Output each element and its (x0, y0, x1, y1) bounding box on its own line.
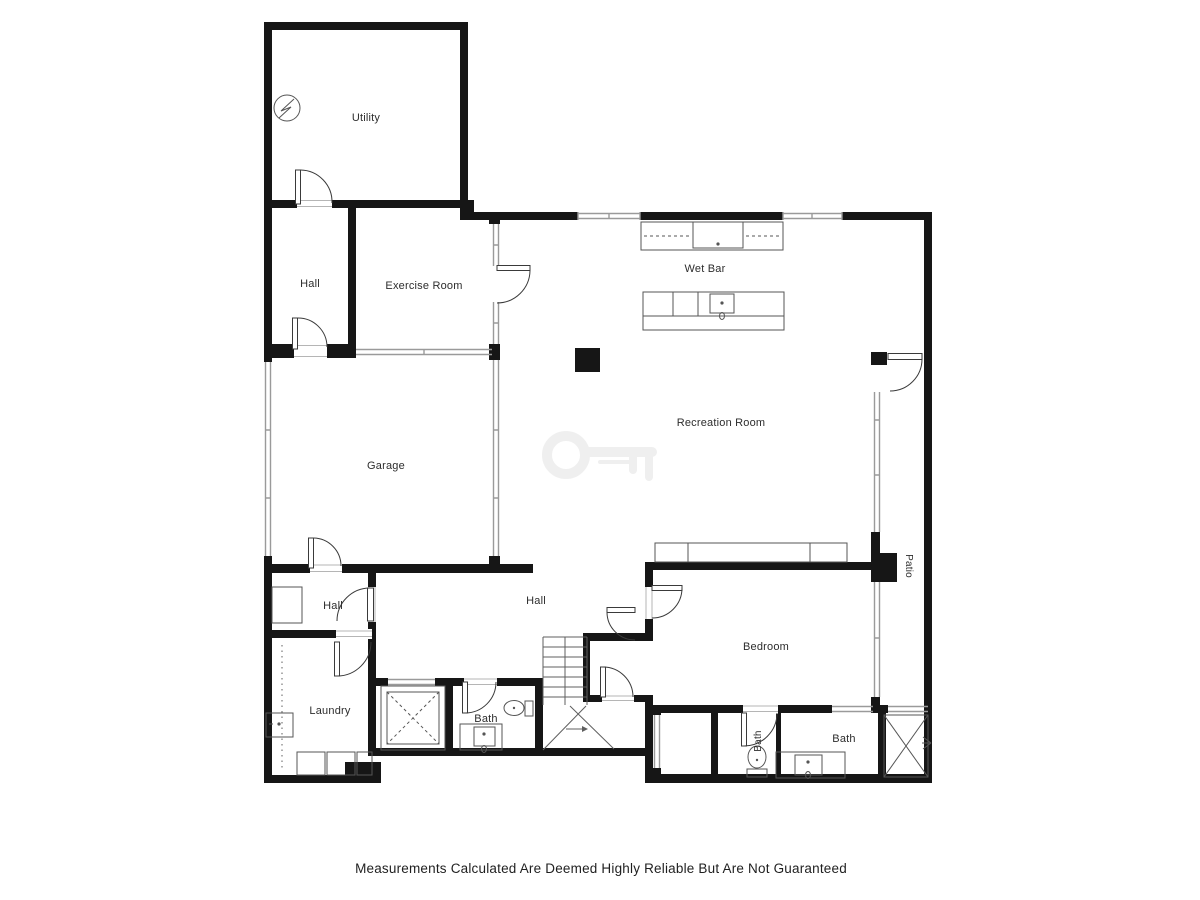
room-label-laundry: Laundry (309, 705, 350, 717)
room-label-recreation-room: Recreation Room (677, 417, 766, 429)
door-hall-upper (293, 318, 328, 359)
bedroom-counter (655, 543, 847, 562)
fixtures (266, 95, 931, 779)
column (575, 348, 600, 372)
shower-icon (381, 686, 445, 750)
wet-bar-cabinets (641, 222, 783, 250)
door-patio (888, 354, 922, 392)
room-label-wet-bar: Wet Bar (685, 263, 726, 275)
key-watermark (547, 436, 652, 477)
walls (264, 22, 932, 783)
bath-center-fixtures (460, 701, 533, 753)
room-label-hall-center: Hall (526, 595, 546, 607)
door-closet (601, 667, 635, 703)
room-label-garage: Garage (367, 460, 405, 472)
door-hall-mid (337, 587, 377, 622)
door-bath-center (463, 677, 498, 713)
room-label-bath-center: Bath (474, 713, 497, 725)
room-label-patio: Patio (903, 554, 914, 578)
door-garage (309, 538, 343, 574)
hall-closet (272, 587, 302, 623)
floor-plan: Utility Hall Exercise Room Wet Bar Recre… (0, 0, 1200, 900)
shower-icon (884, 715, 931, 777)
room-label-exercise-room: Exercise Room (385, 280, 462, 292)
floor-plan-page: Utility Hall Exercise Room Wet Bar Recre… (0, 0, 1200, 900)
door-laundry (335, 629, 373, 676)
room-label-utility: Utility (352, 112, 381, 124)
room-label-bath-ensuite: Bath (832, 733, 855, 745)
room-label-bath-ensuite-small: Bath (753, 730, 764, 751)
door-exercise-room (497, 266, 530, 304)
room-label-bedroom: Bedroom (743, 641, 789, 653)
room-label-hall-mid: Hall (323, 600, 343, 612)
disclaimer-text: Measurements Calculated Are Deemed Highl… (355, 861, 847, 876)
sink-icon (474, 727, 495, 746)
doors (293, 170, 923, 746)
door-utility (296, 170, 333, 209)
room-label-hall-upper: Hall (300, 278, 320, 290)
electrical-panel-icon (274, 95, 300, 121)
window-walls (266, 212, 929, 768)
door-bedroom (644, 586, 682, 620)
wet-bar-island (643, 292, 784, 330)
